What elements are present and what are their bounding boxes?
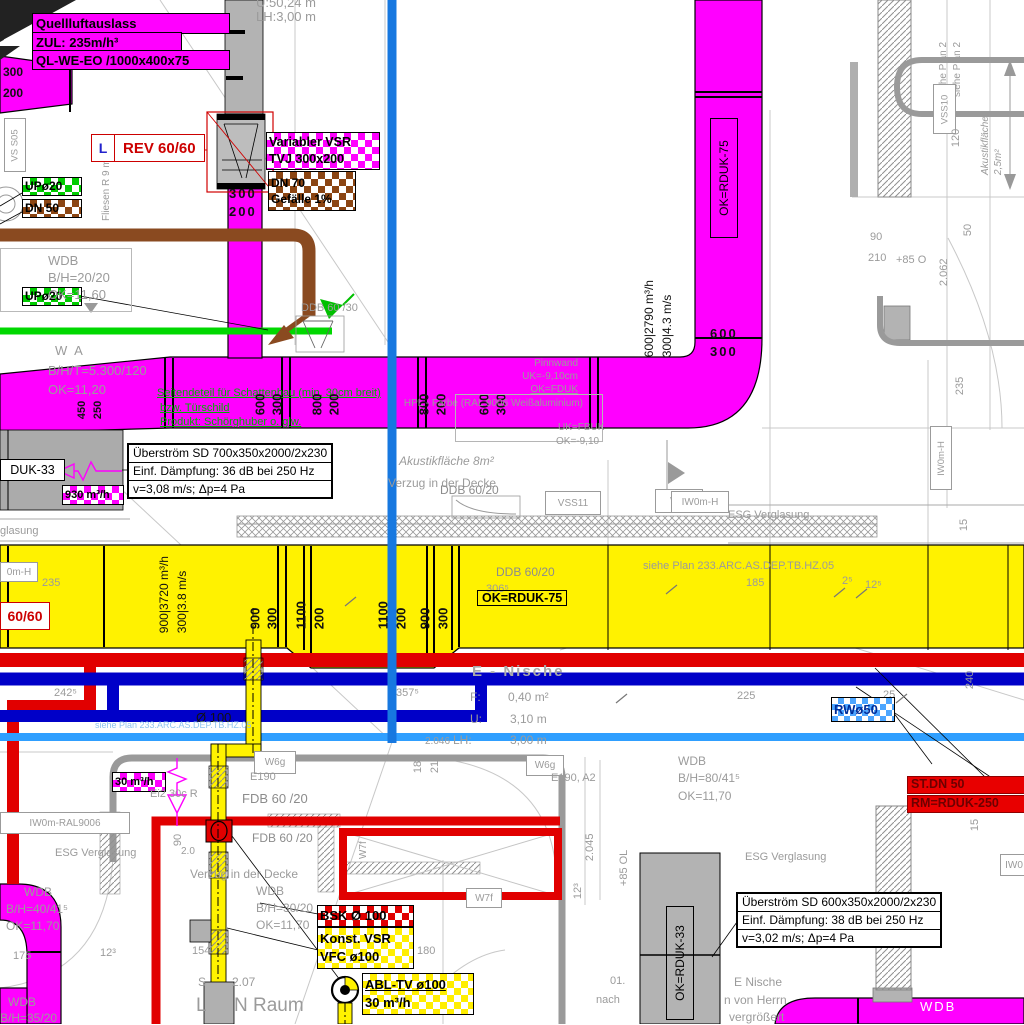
- wdb-ok-bl: OK=11,70: [6, 920, 59, 933]
- wdb-stamp-bl2: WDB: [8, 996, 36, 1009]
- dim-180-h: 180: [417, 945, 435, 957]
- duct-dim: 1100: [377, 601, 391, 629]
- dim-154: 154: [192, 945, 210, 957]
- wa-stamp: W A: [55, 344, 85, 358]
- wdb-bh: B/H=20/20: [48, 271, 110, 285]
- tag-vs-s05: VS S05: [4, 118, 26, 172]
- tag-dn50: DN 50: [22, 199, 82, 218]
- dim-90-v: 90: [172, 834, 184, 846]
- outlet-label-1: Quellluftauslass: [32, 13, 230, 34]
- height-label: LH:: [453, 734, 472, 747]
- tag-rev-6060-cut: 60/60: [0, 602, 50, 630]
- verzug-note-b: Verzug in der Decke: [190, 868, 298, 881]
- pinnwand-box: [455, 394, 603, 442]
- dim-50: 50: [962, 224, 974, 236]
- room-label-b: N Raum: [234, 996, 304, 1017]
- tag-rm-rduk250: RM=RDUK-250: [907, 795, 1024, 813]
- wdb-bh-bl: B/H=40/41⁵: [6, 903, 68, 916]
- wdb-stamp-m: WDB: [256, 885, 284, 898]
- area-label: F:: [470, 691, 481, 704]
- room-no-a: S: [198, 976, 206, 989]
- tag-iw0-cut: IW0: [1000, 854, 1024, 876]
- ueberstroem-box-1: Überström SD 700x350x2000/2x230 Einf. Dä…: [127, 443, 333, 499]
- duct-dim: 300: [266, 608, 280, 630]
- room-label-a: L: [196, 996, 207, 1017]
- ddb-60-20-b: DDB 60/20: [496, 566, 555, 579]
- esg-bottom-right: ESG Verglasung: [745, 851, 826, 863]
- pinnwand-2: UK=-9,10cm: [438, 371, 578, 382]
- dim-12-3-v: 12³: [572, 883, 584, 899]
- ddb-60-30: DDB 60 /30: [301, 302, 358, 314]
- tag-ok-rduk75: OK=RDUK-75: [477, 590, 567, 606]
- area-value: 0,40 m²: [508, 691, 549, 704]
- wdb-stamp-bl: WDB: [24, 886, 52, 899]
- dim-225: 225: [737, 690, 755, 702]
- note-01: 01.: [610, 975, 625, 987]
- duct-dim: 900: [419, 608, 433, 630]
- dim-180-v: 180: [412, 755, 424, 773]
- dim-242: 242⁵: [54, 687, 77, 699]
- riser-dim: 300: [229, 187, 257, 201]
- duct-dim: 600: [254, 394, 268, 416]
- akustik-8: Akustikfläche 8m²: [399, 455, 494, 468]
- tag-up20-a: UPø20: [22, 177, 82, 196]
- tag-abl-tv: ABL-TV ø10030 m³/h: [362, 973, 474, 1015]
- wdb-ok: OK=11,60: [48, 288, 106, 302]
- tag-konst-vsr: Konst. VSRVFC ø100: [317, 927, 414, 969]
- duct-dim: 300: [271, 394, 285, 416]
- wdb-ok-m: OK=11,70: [256, 919, 309, 932]
- tag-ok-rduk33: OK=RDUK-33: [666, 906, 694, 1020]
- riser-dim: 200: [229, 205, 257, 219]
- dim-15-b: 15: [969, 819, 981, 831]
- dim-357: 357⁵: [396, 687, 419, 699]
- tag-ral9006: IW0m-RAL9006: [0, 812, 130, 834]
- duct-dim: 1100: [295, 601, 309, 629]
- pinnwand-5: UK=FBUK: [558, 422, 604, 433]
- tag-variabler-vsr: Variabler VSRTVJ 300x200: [266, 132, 380, 170]
- tag-iw0mh-cut: 0m-H: [0, 562, 38, 582]
- siehe-plan-233-pipe: siehe Plan 233.ARC.AS.DEP.TB.HZ.05: [95, 721, 255, 731]
- esg-right: ESG Verglasung: [728, 509, 809, 521]
- tag-flow-930: 930 m³/h: [62, 485, 124, 505]
- door-note-3: Produkt: Schörghuber o. glw.: [160, 416, 301, 428]
- tag-e190-a2: E190, A2: [551, 772, 596, 784]
- fire-damper-bsk: [206, 820, 232, 842]
- duct-dim: 200: [395, 608, 409, 630]
- return-duct-yellow: [0, 545, 1024, 668]
- ueberstroem-box-2: Überström SD 600x350x2000/2x230 Einf. Dä…: [736, 892, 942, 948]
- dim-2-5: 2⁵: [842, 575, 853, 587]
- note-nach: nach: [596, 994, 620, 1006]
- rev-letter: L: [92, 135, 115, 161]
- dim-85ol: +85 OL: [618, 850, 630, 886]
- tag-duk33: DUK-33: [0, 459, 65, 481]
- wdb-stamp: WDB: [48, 254, 78, 268]
- esg-bottom-left: ESG Verglasung: [55, 847, 136, 859]
- wdb-ok-r: OK=11,70: [678, 790, 731, 803]
- tag-dn70: DN 70Gefälle 1%: [268, 171, 356, 211]
- note-vergroessert: vergrößert: [729, 1011, 784, 1024]
- perim-value: 3,10 m: [510, 713, 547, 726]
- dim-175: 175: [13, 950, 31, 962]
- tag-w7f-vert: W7f: [358, 841, 369, 859]
- tag-ei2: Ei2 30c R: [150, 788, 198, 800]
- floor-note: Fliesen R 9 m²: [101, 156, 112, 221]
- dim-2046: 2.046: [425, 736, 450, 747]
- dim-12-3: 12³: [100, 947, 116, 959]
- note-von-herrn: n von Herrn: [724, 994, 787, 1007]
- tag-ok-rduk75-vertical: OK=RDUK-75: [710, 118, 738, 238]
- dim-210-v: 210: [429, 755, 441, 773]
- wdb-bh-r: B/H=80/41⁵: [678, 772, 740, 785]
- rev-text: REV 60/60: [115, 135, 204, 161]
- tag-st-dn50: ST.DN 50: [907, 776, 1024, 794]
- wdb-bh-m: B/H=30/20: [256, 902, 313, 915]
- dim-235-left: 235: [42, 577, 60, 589]
- duct-dim: 200: [328, 394, 342, 416]
- akustik-25-b: 2,5m²: [993, 149, 1004, 175]
- wa-bht: B/H/T=5.300/120: [48, 364, 147, 378]
- speed-dim: 300|4.3 m/s: [661, 295, 674, 357]
- dim-210: 210: [868, 252, 886, 264]
- rev-label: L REV 60/60: [91, 134, 205, 162]
- dim-85o: +85 O: [896, 254, 926, 266]
- dim-235-right: 235: [954, 377, 966, 395]
- tag-bsk: BSK Ø 100: [317, 905, 414, 927]
- door-note-2: bzw. Türschild: [160, 402, 230, 414]
- flow-dim: 900|3720 m³/h: [158, 556, 171, 633]
- note-e-nische: E Nische: [734, 976, 782, 989]
- dim-2045: 2.045: [584, 834, 596, 862]
- wa-ok: OK=11,20: [48, 383, 106, 397]
- duct-dim: 900: [249, 608, 263, 630]
- duct-dim: 300: [3, 66, 23, 79]
- dim-15: 15: [958, 519, 970, 531]
- flow-dim: 600|2790 m³/h: [643, 280, 656, 357]
- ddb-60-20: DDB 60/20: [440, 484, 499, 497]
- duct-dim: 450: [76, 401, 88, 419]
- hvac-plan-screenshot: { "colors":{"duct_supply":"#ff00ff","duc…: [0, 0, 1024, 1024]
- pinnwand-1: Pinnwand: [438, 358, 578, 369]
- room-height: LH:3,00 m: [256, 10, 316, 24]
- wdb-bh-bl2: B/H=35/20: [0, 1012, 57, 1025]
- duct-dim: 250: [92, 401, 104, 419]
- verglasung-cut: glasung: [0, 525, 39, 537]
- tag-iw0mh-vert: IW0m-H: [930, 426, 952, 490]
- dim-240: 240: [964, 671, 976, 689]
- height-value: 3,00 m: [510, 734, 547, 747]
- tag-vss11: VSS11: [545, 491, 601, 515]
- siehe-plan-233: siehe Plan 233.ARC.AS.DEP.TB.HZ.05: [643, 560, 834, 572]
- outlet-label-3: QL-WE-EO /1000x400x75: [32, 50, 230, 70]
- tag-iw0mh: IW0m-H: [671, 491, 729, 513]
- duct-dim: 300: [437, 608, 451, 630]
- dim-90: 90: [870, 231, 882, 243]
- duct-dim: 300: [710, 345, 738, 359]
- tag-fdb-6020-b: FDB 60 /20: [252, 832, 326, 845]
- dim-12-5: 12⁵: [865, 579, 882, 591]
- pinnwand-6: OK=-9,10: [556, 436, 599, 447]
- akustik-25-a: Akustikfläche: [980, 116, 991, 175]
- outlet-label-2: ZUL: 235m/h³: [32, 32, 182, 52]
- tag-vss10: VSS10: [933, 84, 956, 134]
- room-name-nische: E - Nische: [472, 664, 565, 681]
- wdb-stamp-r: WDB: [678, 755, 706, 768]
- dim-120: 120: [950, 129, 962, 147]
- duct-dim: 600: [710, 327, 738, 341]
- tag-e190: E190: [250, 771, 276, 783]
- duct-dim: 200: [313, 608, 327, 630]
- tag-fdb-6020: FDB 60 /20: [242, 792, 308, 806]
- dim-185: 185: [746, 577, 764, 589]
- tag-rw50: RWø50: [831, 697, 895, 722]
- perim-label: U:: [470, 713, 482, 726]
- dim-2-0: 2.0: [181, 846, 195, 857]
- wdb-on-duct: WDB: [920, 1000, 956, 1014]
- tag-w7f: W7f: [466, 888, 502, 908]
- room-no-b: 2.07: [232, 976, 255, 989]
- duct-dim: 800: [311, 394, 325, 416]
- duct-dim: 200: [3, 87, 23, 100]
- speed-dim: 300|3.8 m/s: [176, 571, 189, 633]
- dim-2062: 2.062: [938, 259, 950, 287]
